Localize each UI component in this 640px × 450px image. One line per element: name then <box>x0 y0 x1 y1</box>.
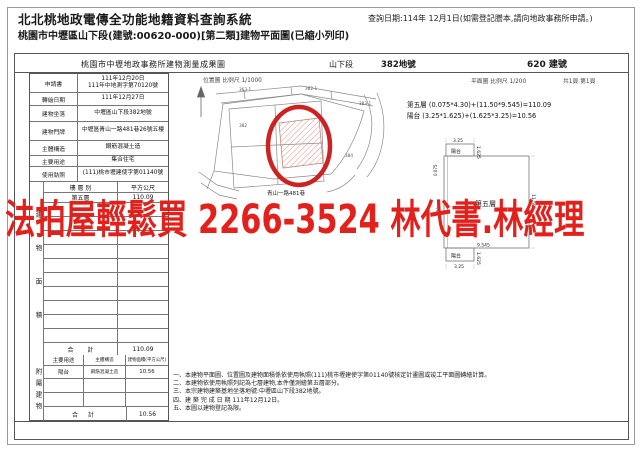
empty-row <box>44 379 168 393</box>
annex-header: 主要用途 主體構造 建物面積(平方公尺) <box>44 355 168 366</box>
row-value: 111年12月20日 111年中地測字第70120號 <box>78 74 168 92</box>
annex-row: 陽台 鋼筋混凝土造 10.56 <box>44 366 168 379</box>
lot-number: 384 <box>345 153 353 158</box>
balcony-depth-dim: 1.625 <box>475 252 481 265</box>
row-value: 鋼筋混凝土造 <box>78 141 168 155</box>
balcony-width-dim: 3.25 <box>453 138 463 144</box>
note-line: 一、本建物平面圖、位置圖及建物面積係依使用執照(111)桃市壢建使字第01140… <box>173 372 490 380</box>
row-value: 中壢區山下段382地號 <box>78 106 168 121</box>
col-header-floor: 樓 層 別 <box>44 182 118 192</box>
row-value: 中壢區青山一路481巷26號五樓 <box>78 122 168 140</box>
building-number: 620 建號 <box>527 57 567 70</box>
row-value-line2: 111年中地測字第70120號 <box>88 83 158 91</box>
col-header-sqm: 平方公尺 <box>118 182 168 192</box>
row-label: 使用執照 <box>30 167 78 181</box>
floor-area-total-row: 合 計 110.09 <box>44 343 168 355</box>
note-line: 四、建 築 完 成 日 期 111年12月12日。 <box>173 397 490 405</box>
document-subtitle: 桃園市中壢區山下段(建號:00620-000)[第二類]建物平面圖(已縮小列印) <box>18 27 349 42</box>
system-title: 北北桃地政電傳全功能地籍資料查詢系統 <box>18 9 252 28</box>
lot-number: 382 <box>239 123 247 128</box>
row-value: 集合住宅 <box>78 156 168 166</box>
table-row: 申請書 111年12月20日 111年中地測字第70120號 <box>30 74 168 93</box>
footer-divider <box>15 421 628 422</box>
table-row: 主體構造 鋼筋混凝土造 <box>30 141 168 156</box>
building-info-table: 申請書 111年12月20日 111年中地測字第70120號 轉繪日期 111年… <box>29 73 169 421</box>
survey-document-frame: 桃園市中壢地政事務所建物測量成果圖 山下段 382地號 620 建號 位置圖 比… <box>14 53 629 440</box>
row-label: 申請書 <box>30 74 78 92</box>
empty-row <box>44 301 168 315</box>
empty-row <box>44 393 168 407</box>
row-label: 主體構造 <box>30 141 78 155</box>
survey-title: 桃園市中壢地政事務所建物測量成果圖 <box>81 59 226 70</box>
section-name: 山下段 <box>329 59 353 70</box>
total-label: 合 計 <box>44 407 127 422</box>
table-row: 主要用途 集合住宅 <box>30 156 168 167</box>
total-value: 110.09 <box>118 343 168 355</box>
note-line: 三、本宗建物建築基地坐落地號:中壢區山下段382地號。 <box>173 388 490 396</box>
row-label: 建物門牌 <box>30 122 78 140</box>
total-value: 10.56 <box>127 407 168 422</box>
empty-row <box>44 315 168 329</box>
advertisement-overlay-text: 法拍屋輕鬆買 2266-3524 林代書.林經理 <box>5 195 584 245</box>
land-number: 382地號 <box>381 58 416 70</box>
annex-value: 10.56 <box>126 366 168 378</box>
empty-row <box>44 273 168 287</box>
lot-number: 363-1 <box>239 87 252 92</box>
annex-section: 附屬建物 主要用途 主體構造 建物面積(平方公尺) 陽台 鋼筋混凝土造 10.5… <box>30 355 168 422</box>
page-caption: 共1頁 第1頁 <box>563 76 595 85</box>
balcony-label: 陽台 <box>451 253 461 260</box>
balcony-depth-dim: 1.625 <box>475 146 481 159</box>
note-line: 五、本圖以建物登記為限。 <box>173 405 490 413</box>
table-row: 使用執照 (111)桃市壢建使字第01140號 <box>30 167 168 182</box>
col-header-use: 主要用途 <box>44 355 84 365</box>
lot-number: 382-1 <box>305 86 318 91</box>
empty-row <box>44 287 168 301</box>
table-row: 建物門牌 中壢區青山一路481巷26號五樓 <box>30 122 168 141</box>
row-label: 建物坐落 <box>30 106 78 121</box>
balcony-label: 陽台 <box>451 148 461 155</box>
lot-number: 383-1 <box>359 101 372 106</box>
table-row: 轉繪日期 111年12月27日 <box>30 93 168 106</box>
annex-grid: 主要用途 主體構造 建物面積(平方公尺) 陽台 鋼筋混凝土造 10.56 合 計… <box>44 355 168 422</box>
empty-row <box>44 259 168 273</box>
row-value: 111年12月27日 <box>78 93 168 105</box>
row-value-line1: 111年12月20日 <box>101 76 144 84</box>
annex-name: 陽台 <box>44 366 84 378</box>
floor-plan-caption: 平面圖 比例尺 1/200 <box>471 76 526 85</box>
query-date: 查詢日期:114年 12月1日(如需登記謄本,請向地政事務所申請。) <box>368 13 593 24</box>
left-dim-a: 0.075 <box>433 164 438 176</box>
table-row: 建物坐落 中壢區山下段382地號 <box>30 106 168 122</box>
col-header-area: 建物面積(平方公尺) <box>126 355 168 365</box>
subject-building-footprint <box>279 118 323 168</box>
empty-row <box>44 329 168 343</box>
annex-structure: 鋼筋混凝土造 <box>84 366 126 378</box>
col-header-structure: 主體構造 <box>84 355 126 365</box>
annex-total-row: 合 計 10.56 <box>44 407 168 422</box>
north-arrow-icon <box>198 87 205 117</box>
row-label: 轉繪日期 <box>30 93 78 105</box>
notes-block: 一、本建物平面圖、位置圖及建物面積係依使用執照(111)桃市壢建使字第01140… <box>173 372 490 413</box>
total-label: 合 計 <box>44 343 118 355</box>
floor-area-header: 樓 層 別 平方公尺 <box>44 182 168 193</box>
row-value: (111)桃市壢建使字第01140號 <box>78 167 168 181</box>
annex-side-label: 附屬建物 <box>30 355 44 422</box>
balcony-width-dim: 3.25 <box>454 264 464 270</box>
empty-row <box>44 245 168 259</box>
row-label: 主要用途 <box>30 156 78 166</box>
